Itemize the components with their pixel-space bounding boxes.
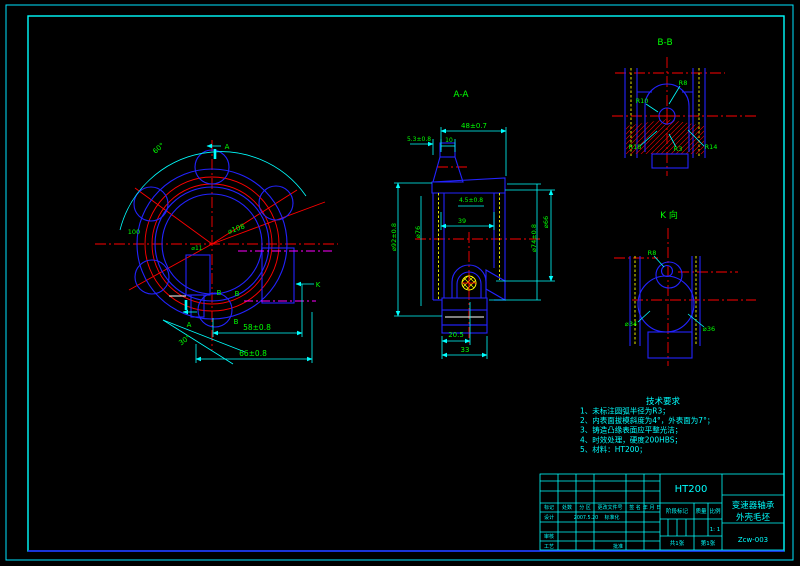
front-view bbox=[95, 140, 338, 364]
dim-r14: R14 bbox=[705, 143, 718, 151]
row-process: 工艺 bbox=[544, 544, 554, 550]
view-title-k: K 向 bbox=[660, 209, 678, 221]
dim-d76: ⌀76 bbox=[414, 226, 422, 238]
dim-39: 39 bbox=[458, 217, 466, 225]
design-date: 2007.5.20 bbox=[574, 515, 598, 521]
dim-d34: ⌀34 bbox=[625, 320, 637, 328]
label-b-1: B bbox=[217, 289, 222, 297]
drawing-frame bbox=[6, 5, 793, 560]
dim-4-5: 4.5±0.8 bbox=[459, 197, 483, 204]
col-change-file: 更改文件号 bbox=[597, 504, 622, 511]
tech-req-item-5: 5、材料：HT200； bbox=[580, 444, 647, 454]
dim-d74: ⌀74±0.8 bbox=[530, 224, 538, 252]
technical-requirements: 技术要求1、未标注圆弧半径为R3；2、内表面拔模斜度为4°，外表面为7°；3、铸… bbox=[580, 396, 714, 454]
cad-drawing-canvas: 60°A⌀108100⌀11BBBKA30°58±0.866±0.8 bbox=[0, 0, 800, 566]
dim-r3: R3 bbox=[674, 145, 683, 153]
dim-r18: R18 bbox=[629, 143, 642, 151]
part-name-line2: 外壳毛坯 bbox=[736, 512, 771, 523]
stage-mark-label: 阶段标记 bbox=[666, 507, 689, 515]
col-signature: 签 名 bbox=[629, 504, 641, 511]
drawing-svg: 60°A⌀108100⌀11BBBKA30°58±0.866±0.8 bbox=[0, 0, 800, 566]
drawing-number: Zcw-003 bbox=[738, 536, 768, 544]
angle-30: 30° bbox=[177, 334, 192, 348]
mass-label: 质量 bbox=[695, 507, 707, 515]
dim-d66: ⌀66 bbox=[542, 216, 550, 228]
dim-r10: R10 bbox=[636, 97, 649, 105]
scale-label: 比例 bbox=[709, 507, 721, 515]
dim-48: 48±0.7 bbox=[461, 122, 487, 130]
tech-req-item-3: 3、铸造凸缘表面应平整光洁； bbox=[580, 425, 682, 435]
angle-60: 60° bbox=[151, 141, 166, 155]
sheet-total: 共1张 bbox=[670, 539, 685, 547]
material: HT200 bbox=[675, 484, 708, 495]
tech-req-item-2: 2、内表面拔模斜度为4°，外表面为7°； bbox=[580, 415, 714, 425]
part-name-line1: 变速器轴承 bbox=[732, 500, 775, 511]
section-title-bb: B-B bbox=[657, 38, 672, 48]
section-arrow-a-top: A bbox=[225, 143, 230, 151]
label-b-2: B bbox=[235, 290, 240, 298]
section-title-aa: A-A bbox=[453, 90, 469, 100]
dim-33: 33 bbox=[461, 346, 470, 354]
dim-d36: ⌀36 bbox=[703, 325, 715, 333]
section-b-b bbox=[612, 57, 757, 176]
title-block-labels: HT200变速器轴承外壳毛坯Zcw-003阶段标记质量比例1: 1共1张第1张标… bbox=[544, 484, 775, 550]
dim-d92: ⌀92±0.8 bbox=[390, 223, 398, 251]
dim-10: 10 bbox=[445, 137, 453, 144]
dim-58: 58±0.8 bbox=[243, 323, 271, 332]
col-count: 处数 bbox=[562, 504, 572, 511]
view-k-labels: K 向R8⌀34⌀36 bbox=[625, 209, 715, 333]
row-audit: 审核 bbox=[544, 533, 554, 540]
label-b-3: B bbox=[234, 318, 239, 326]
dim-r8: R8 bbox=[679, 79, 688, 87]
row-approve: 批准 bbox=[613, 543, 623, 550]
col-date: 年 月 日 bbox=[643, 504, 661, 511]
tech-req-title: 技术要求 bbox=[646, 396, 681, 407]
col-zone: 分 区 bbox=[579, 504, 591, 511]
dim-100: 100 bbox=[128, 228, 140, 236]
dim-d11: ⌀11 bbox=[191, 245, 202, 252]
row-design: 设计 bbox=[544, 514, 554, 521]
col-mark: 标记 bbox=[544, 504, 554, 511]
scale-value: 1: 1 bbox=[710, 527, 721, 533]
dim-d108: ⌀108 bbox=[227, 222, 246, 236]
tech-req-item-4: 4、时效处理，硬度200HBS； bbox=[580, 434, 682, 444]
dim-20-5: 20.5 bbox=[448, 331, 464, 339]
view-arrow-k: K bbox=[316, 281, 321, 289]
dim-5-3: 5.3±0.8 bbox=[407, 136, 431, 143]
view-k bbox=[614, 228, 756, 366]
sheet-number: 第1张 bbox=[701, 539, 716, 547]
tech-req-item-1: 1、未标注圆弧半径为R3； bbox=[580, 406, 670, 416]
dim-r8-k: R8 bbox=[648, 249, 657, 257]
section-arrow-a-bottom: A bbox=[187, 321, 192, 329]
dim-66: 66±0.8 bbox=[239, 349, 267, 358]
row-standardization: 标准化 bbox=[604, 514, 619, 521]
